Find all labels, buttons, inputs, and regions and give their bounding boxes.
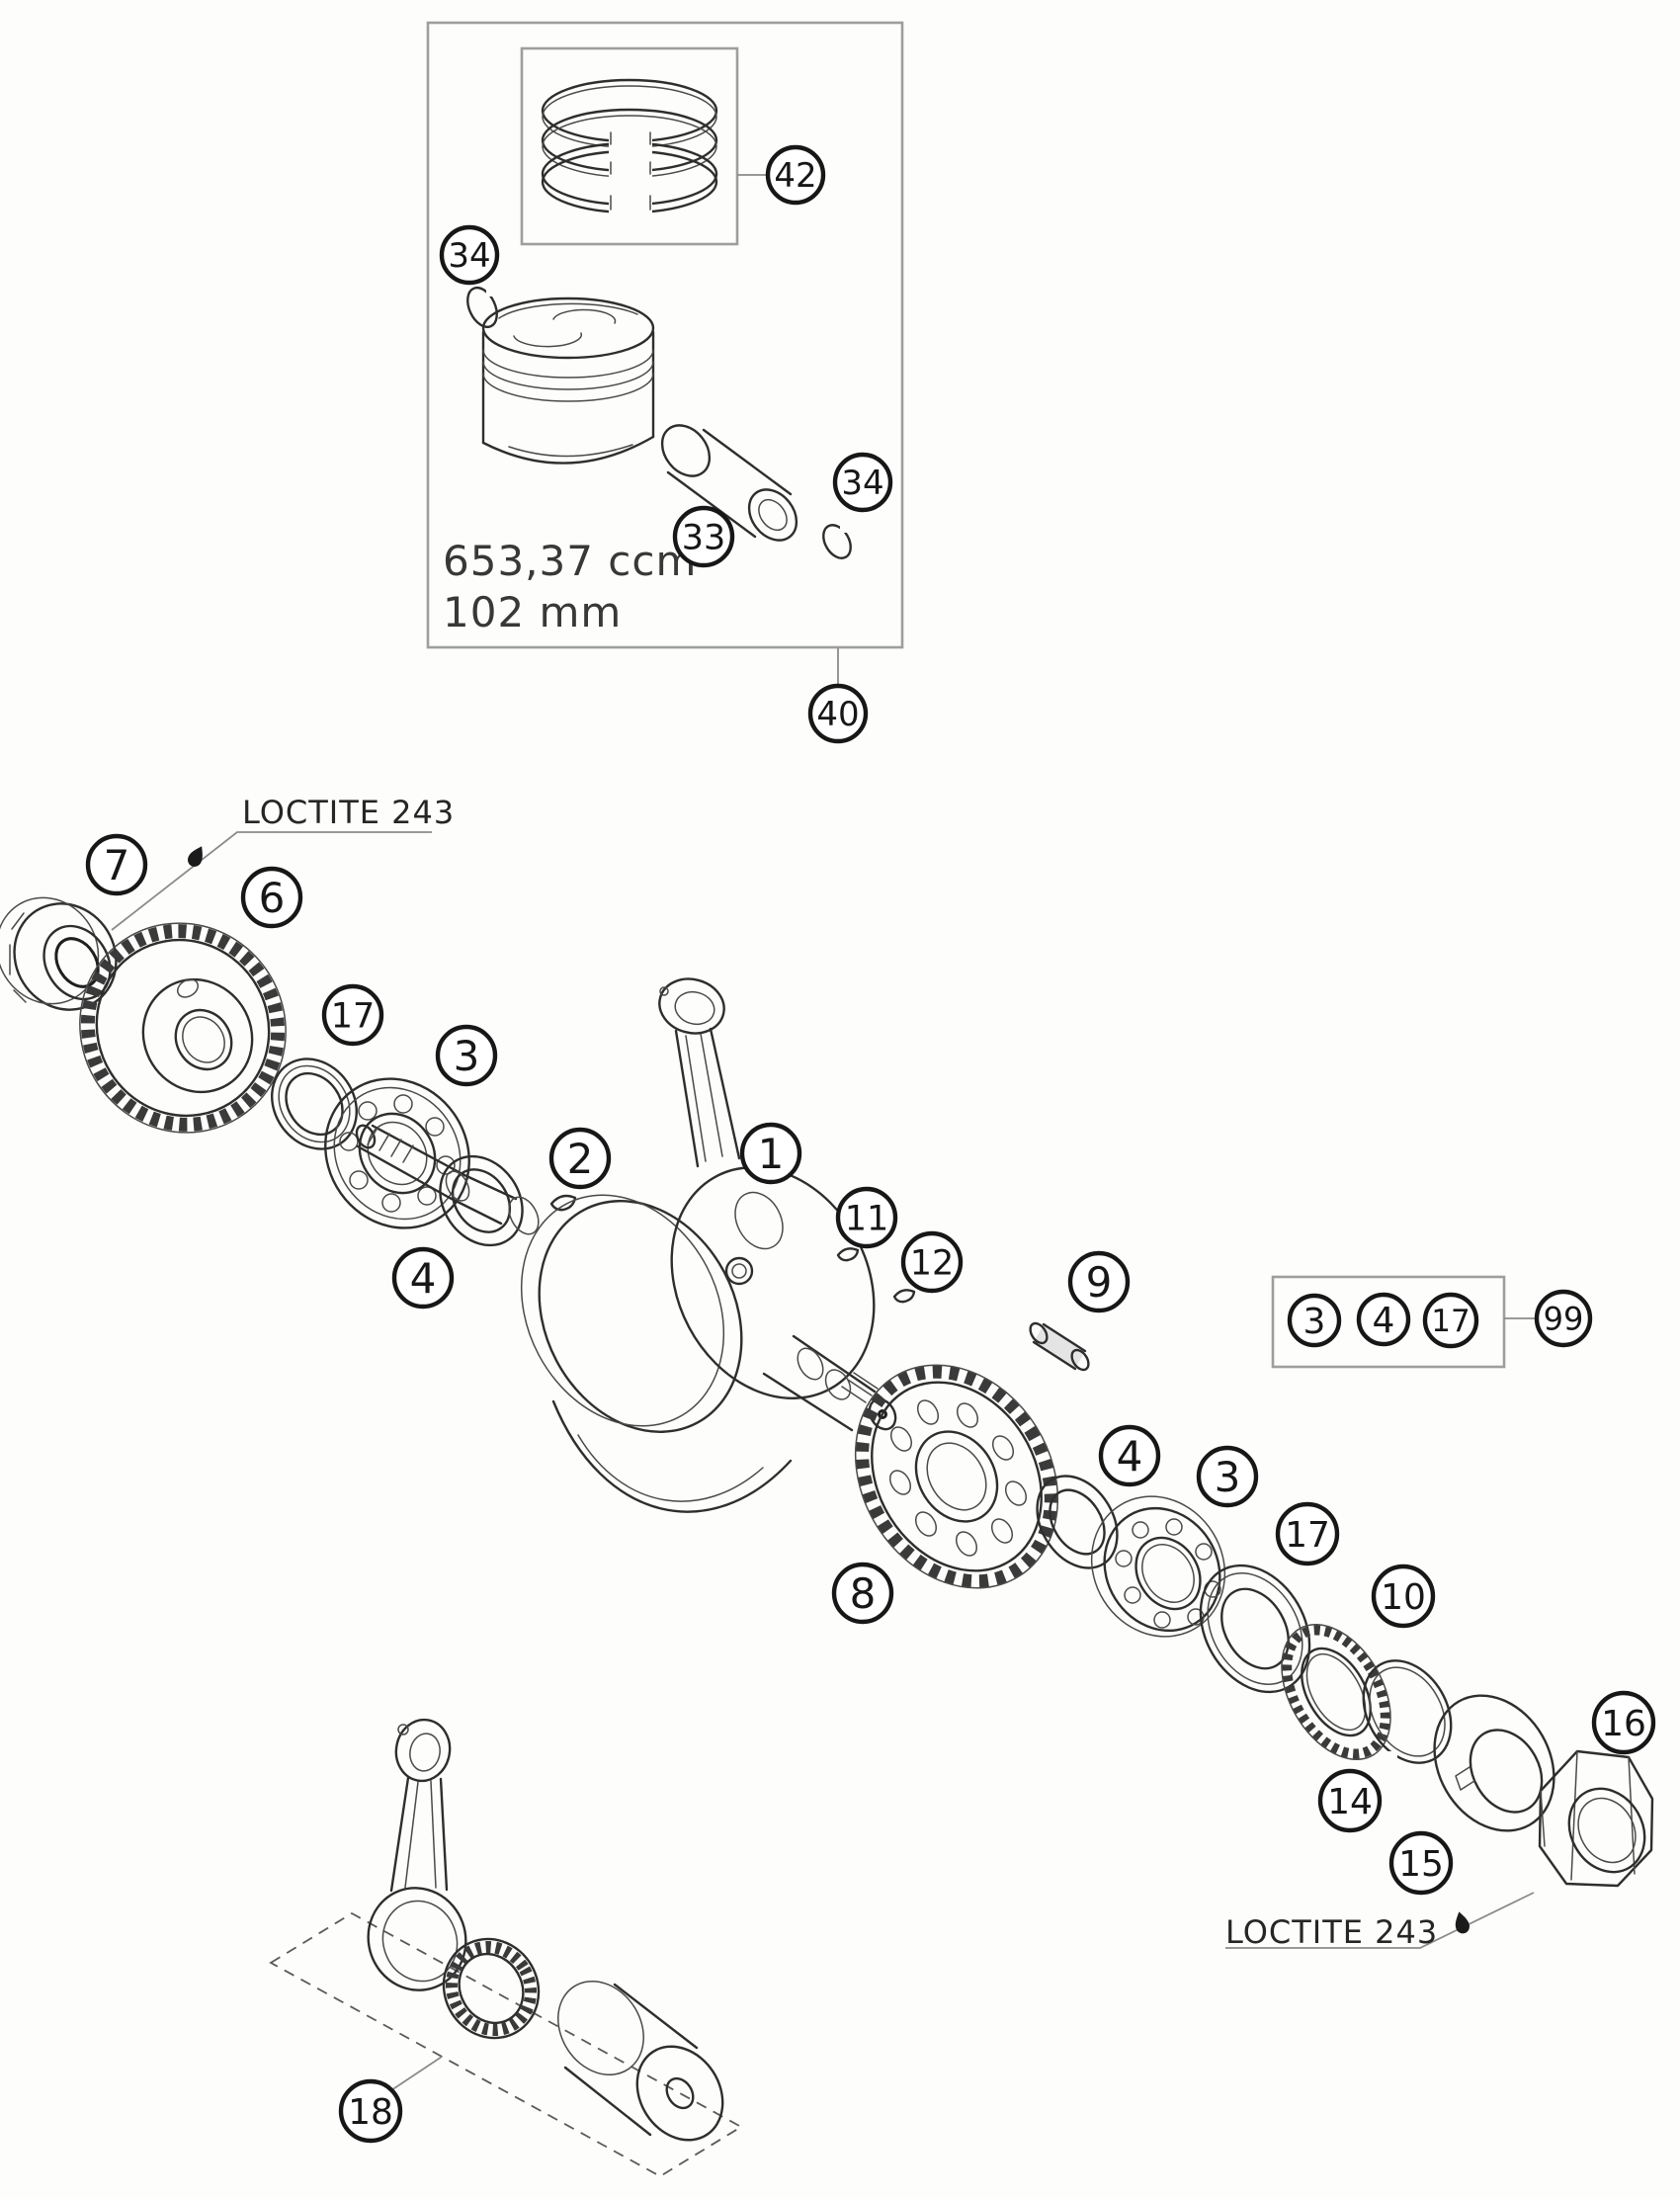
piston [483, 298, 653, 464]
dowel-pin [1027, 1320, 1092, 1373]
svg-text:3: 3 [1303, 1302, 1326, 1342]
svg-text:4: 4 [1117, 1432, 1143, 1480]
hex-nut [1540, 1751, 1659, 1886]
woodruff-key-2 [551, 1196, 575, 1210]
callout-40-4: 40 [810, 686, 866, 741]
callout-42-0: 42 [768, 147, 823, 203]
svg-text:8: 8 [850, 1569, 877, 1618]
svg-text:9: 9 [1086, 1258, 1113, 1307]
woodruff-key-11 [838, 1248, 858, 1260]
svg-text:34: 34 [448, 236, 490, 276]
callout-6-6: 6 [243, 869, 300, 926]
circlip-left [462, 283, 502, 331]
callout-2-9: 2 [551, 1130, 609, 1187]
callout-17-26: 17 [1425, 1295, 1476, 1346]
tab-washer [1411, 1674, 1578, 1853]
svg-text:7: 7 [104, 841, 130, 889]
loctite-drop-top-icon [185, 843, 208, 869]
svg-text:4: 4 [410, 1254, 437, 1303]
callout-15-21: 15 [1391, 1833, 1451, 1893]
svg-text:14: 14 [1327, 1782, 1373, 1822]
callout-34-1: 34 [442, 227, 497, 283]
svg-text:34: 34 [841, 464, 883, 503]
callout-14-20: 14 [1320, 1771, 1380, 1830]
bore-label: 102 mm [443, 588, 622, 636]
callout-16-22: 16 [1594, 1693, 1653, 1752]
callout-17-18: 17 [1278, 1504, 1337, 1564]
callout-4-25: 4 [1359, 1295, 1408, 1344]
callout-3-17: 3 [1199, 1448, 1256, 1505]
callout-34-3: 34 [835, 455, 890, 510]
woodruff-key-12 [894, 1290, 914, 1302]
svg-text:40: 40 [816, 695, 859, 734]
svg-text:11: 11 [845, 1200, 889, 1239]
callout-3-8: 3 [438, 1027, 495, 1084]
circlip-right [818, 520, 857, 562]
svg-text:10: 10 [1381, 1577, 1426, 1618]
loctite-note-top: LOCTITE 243 [242, 794, 455, 831]
loctite-note-bottom: LOCTITE 243 [1225, 1913, 1438, 1951]
callout-11-11: 11 [838, 1189, 895, 1246]
svg-text:2: 2 [567, 1135, 594, 1183]
svg-text:17: 17 [1431, 1304, 1470, 1339]
callout-17-7: 17 [324, 986, 381, 1044]
diagram-canvas: 653,37 ccm 102 mm LOCTITE 243 LOCTITE 24… [0, 0, 1680, 2199]
svg-text:99: 99 [1544, 1301, 1584, 1338]
callout-3-24: 3 [1290, 1296, 1339, 1345]
callout-4-14: 4 [394, 1249, 452, 1307]
svg-text:1: 1 [758, 1130, 785, 1178]
svg-text:33: 33 [682, 519, 726, 558]
svg-text:17: 17 [1285, 1515, 1330, 1556]
svg-text:6: 6 [259, 874, 286, 922]
svg-text:12: 12 [910, 1244, 955, 1284]
svg-text:16: 16 [1601, 1704, 1646, 1744]
callout-1-10: 1 [742, 1125, 799, 1182]
piston-ring-set [543, 80, 716, 220]
callout-8-15: 8 [834, 1565, 891, 1622]
svg-text:3: 3 [1215, 1453, 1241, 1501]
svg-text:3: 3 [454, 1032, 480, 1080]
callout-10-19: 10 [1374, 1566, 1433, 1626]
callout-layer: 4234333440761732111129484317101415161834… [88, 147, 1653, 2141]
displacement-label: 653,37 ccm [443, 537, 697, 585]
svg-text:18: 18 [348, 2092, 393, 2133]
callout-18-23: 18 [341, 2081, 400, 2141]
svg-text:4: 4 [1373, 1301, 1395, 1341]
callout-99-27: 99 [1537, 1292, 1590, 1345]
callout-33-2: 33 [675, 508, 732, 565]
callout-9-13: 9 [1070, 1253, 1128, 1311]
svg-text:15: 15 [1398, 1844, 1444, 1885]
callout-4-16: 4 [1101, 1427, 1158, 1484]
svg-text:17: 17 [331, 997, 376, 1037]
callout-12-12: 12 [903, 1233, 961, 1291]
parts-diagram-page: 653,37 ccm 102 mm LOCTITE 243 LOCTITE 24… [0, 0, 1680, 2199]
svg-text:42: 42 [774, 156, 816, 196]
callout-7-5: 7 [88, 836, 145, 893]
